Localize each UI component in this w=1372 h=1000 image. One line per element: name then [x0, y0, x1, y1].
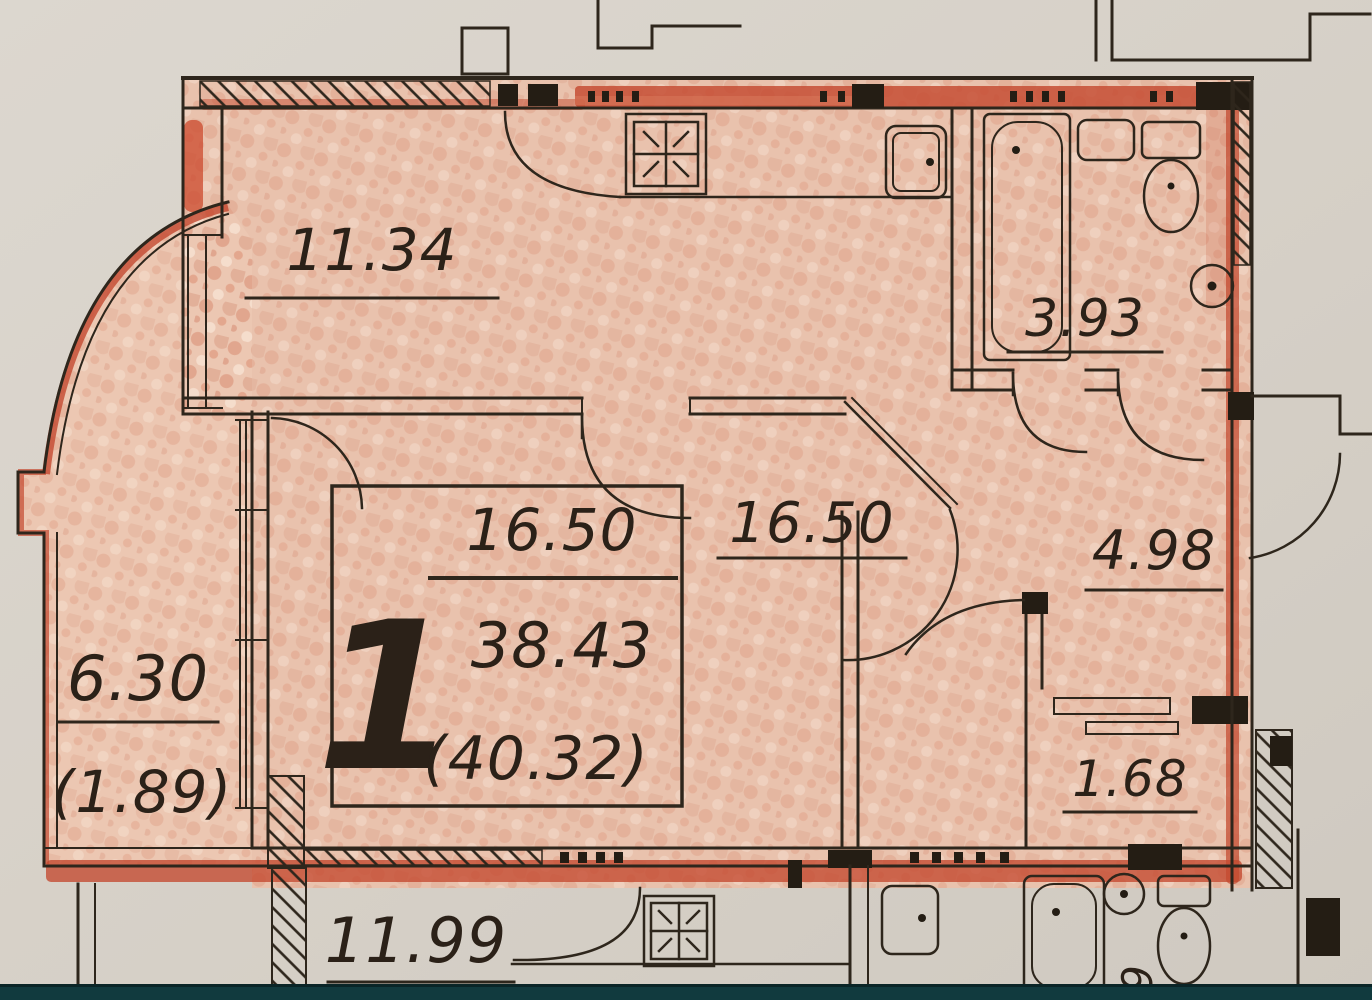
stamp-total-with-balcony-label: (40.32): [423, 724, 649, 794]
kitchen-area-label: 11.34: [286, 216, 457, 284]
bathroom-area-label: 3.93: [1025, 289, 1145, 349]
living-room-area-label: 16.50: [729, 491, 894, 556]
vent-shaft-icon: [498, 84, 518, 106]
balcony-coefficient-label: (1.89): [52, 758, 232, 826]
neighbor-room-area-label: 11.99: [325, 904, 508, 977]
stamp-living-area-label: 16.50: [466, 496, 637, 564]
floor-plan-canvas: 11.34 3.93 16.50 4.98 1.68 6.30 (1.89) 1…: [0, 0, 1372, 1000]
storage-area-label: 1.68: [1072, 750, 1187, 808]
scan-footer-edge: [0, 984, 1372, 987]
balcony-area-label: 6.30: [67, 642, 209, 715]
stamp-total-area-label: 38.43: [471, 609, 654, 682]
hallway-area-label: 4.98: [1092, 519, 1216, 582]
floor-plan-scan: 11.34 3.93 16.50 4.98 1.68 6.30 (1.89) 1…: [0, 0, 1372, 1000]
